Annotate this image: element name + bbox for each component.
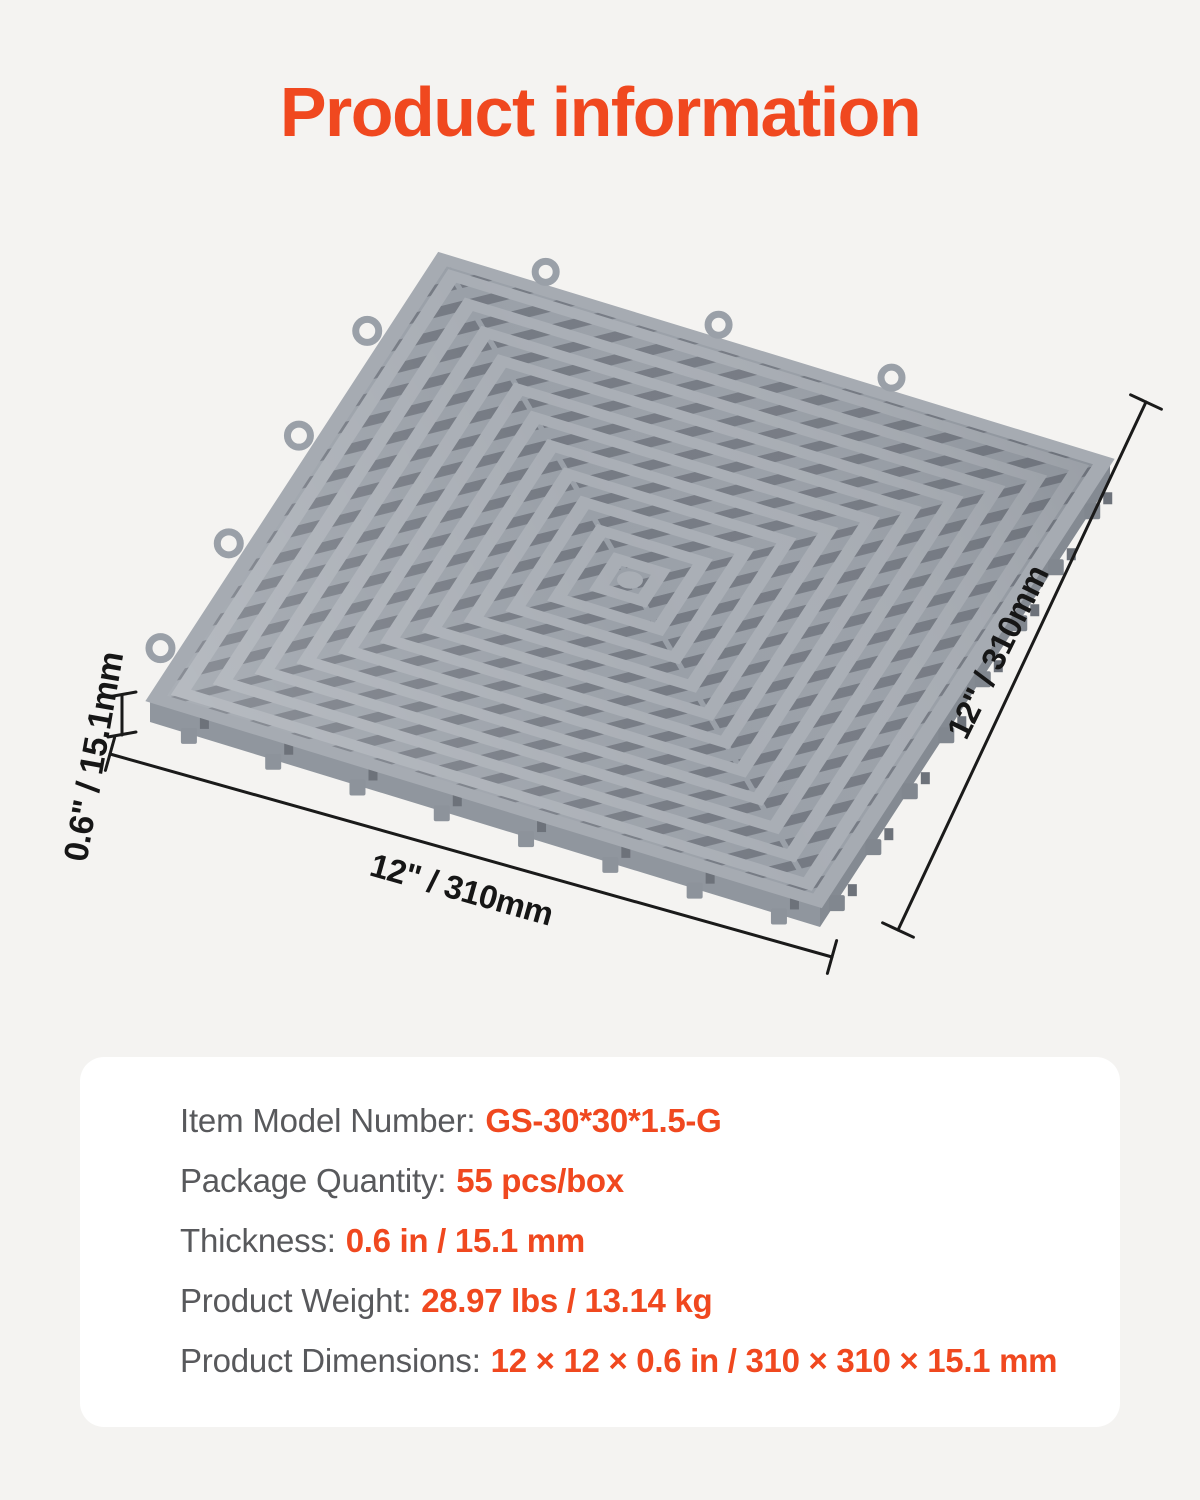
spec-row-weight: Product Weight:28.97 lbs / 13.14 kg xyxy=(180,1283,1070,1318)
tile-dimension-diagram: 12" / 310mm 12" / 310mm 0.6" / 15.1mm xyxy=(0,0,1200,1060)
spec-label: Product Dimensions: xyxy=(180,1342,481,1379)
spec-label: Product Weight: xyxy=(180,1282,411,1319)
spec-row-dimensions: Product Dimensions:12 × 12 × 0.6 in / 31… xyxy=(180,1343,1070,1378)
spec-value: 0.6 in / 15.1 mm xyxy=(346,1222,585,1259)
bottom-dimension-label: 12" / 310mm xyxy=(366,846,557,933)
spec-label: Thickness: xyxy=(180,1222,336,1259)
spec-row-quantity: Package Quantity:55 pcs/box xyxy=(180,1163,1070,1198)
spec-label: Package Quantity: xyxy=(180,1162,446,1199)
spec-value: GS-30*30*1.5-G xyxy=(485,1102,721,1139)
spec-card: Item Model Number:GS-30*30*1.5-G Package… xyxy=(80,1057,1120,1427)
spec-label: Item Model Number: xyxy=(180,1102,475,1139)
spec-value: 12 × 12 × 0.6 in / 310 × 310 × 15.1 mm xyxy=(491,1342,1058,1379)
spec-row-thickness: Thickness:0.6 in / 15.1 mm xyxy=(180,1223,1070,1258)
spec-value: 28.97 lbs / 13.14 kg xyxy=(421,1282,712,1319)
tile-top-surface xyxy=(150,255,1110,905)
product-information-page: Product information xyxy=(0,0,1200,1500)
spec-row-model: Item Model Number:GS-30*30*1.5-G xyxy=(180,1103,1070,1138)
spec-value: 55 pcs/box xyxy=(456,1162,624,1199)
